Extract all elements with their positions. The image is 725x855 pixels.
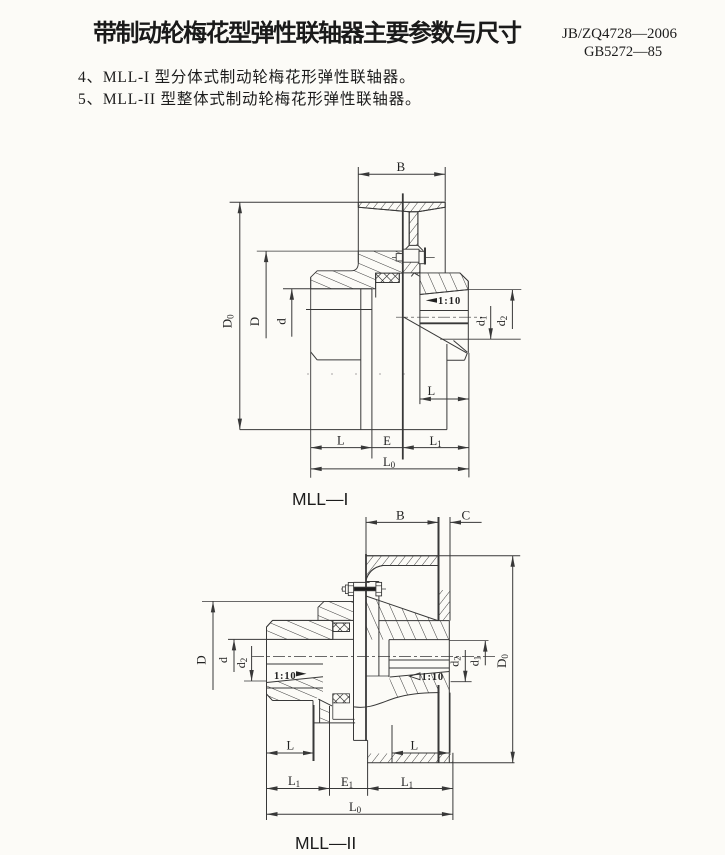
svg-text:d2: d2 [234,658,249,669]
svg-text:L: L [428,384,436,398]
svg-text:d1: d1 [468,656,483,667]
svg-text:E: E [383,434,391,448]
svg-text:L1: L1 [401,775,413,790]
svg-text:C: C [462,508,471,523]
svg-text:L: L [287,739,295,753]
svg-text:B: B [396,508,405,523]
svg-text:1:10: 1:10 [274,671,296,682]
svg-text:L1: L1 [430,434,442,449]
svg-text:D: D [194,655,209,664]
svg-text:L1: L1 [288,774,300,789]
svg-text:d: d [273,318,288,325]
svg-text:D0: D0 [494,654,510,668]
svg-text:E1: E1 [341,775,353,790]
svg-text:d: d [216,657,230,663]
svg-text:B: B [397,159,406,174]
svg-text:1:10: 1:10 [438,296,461,307]
svg-text:L: L [337,434,345,448]
svg-text:L0: L0 [349,800,362,815]
svg-text:L: L [411,739,419,753]
svg-text:D0: D0 [220,314,236,328]
svg-text:D: D [247,317,262,326]
svg-text:L0: L0 [383,455,396,470]
svg-text:d2: d2 [494,316,509,327]
